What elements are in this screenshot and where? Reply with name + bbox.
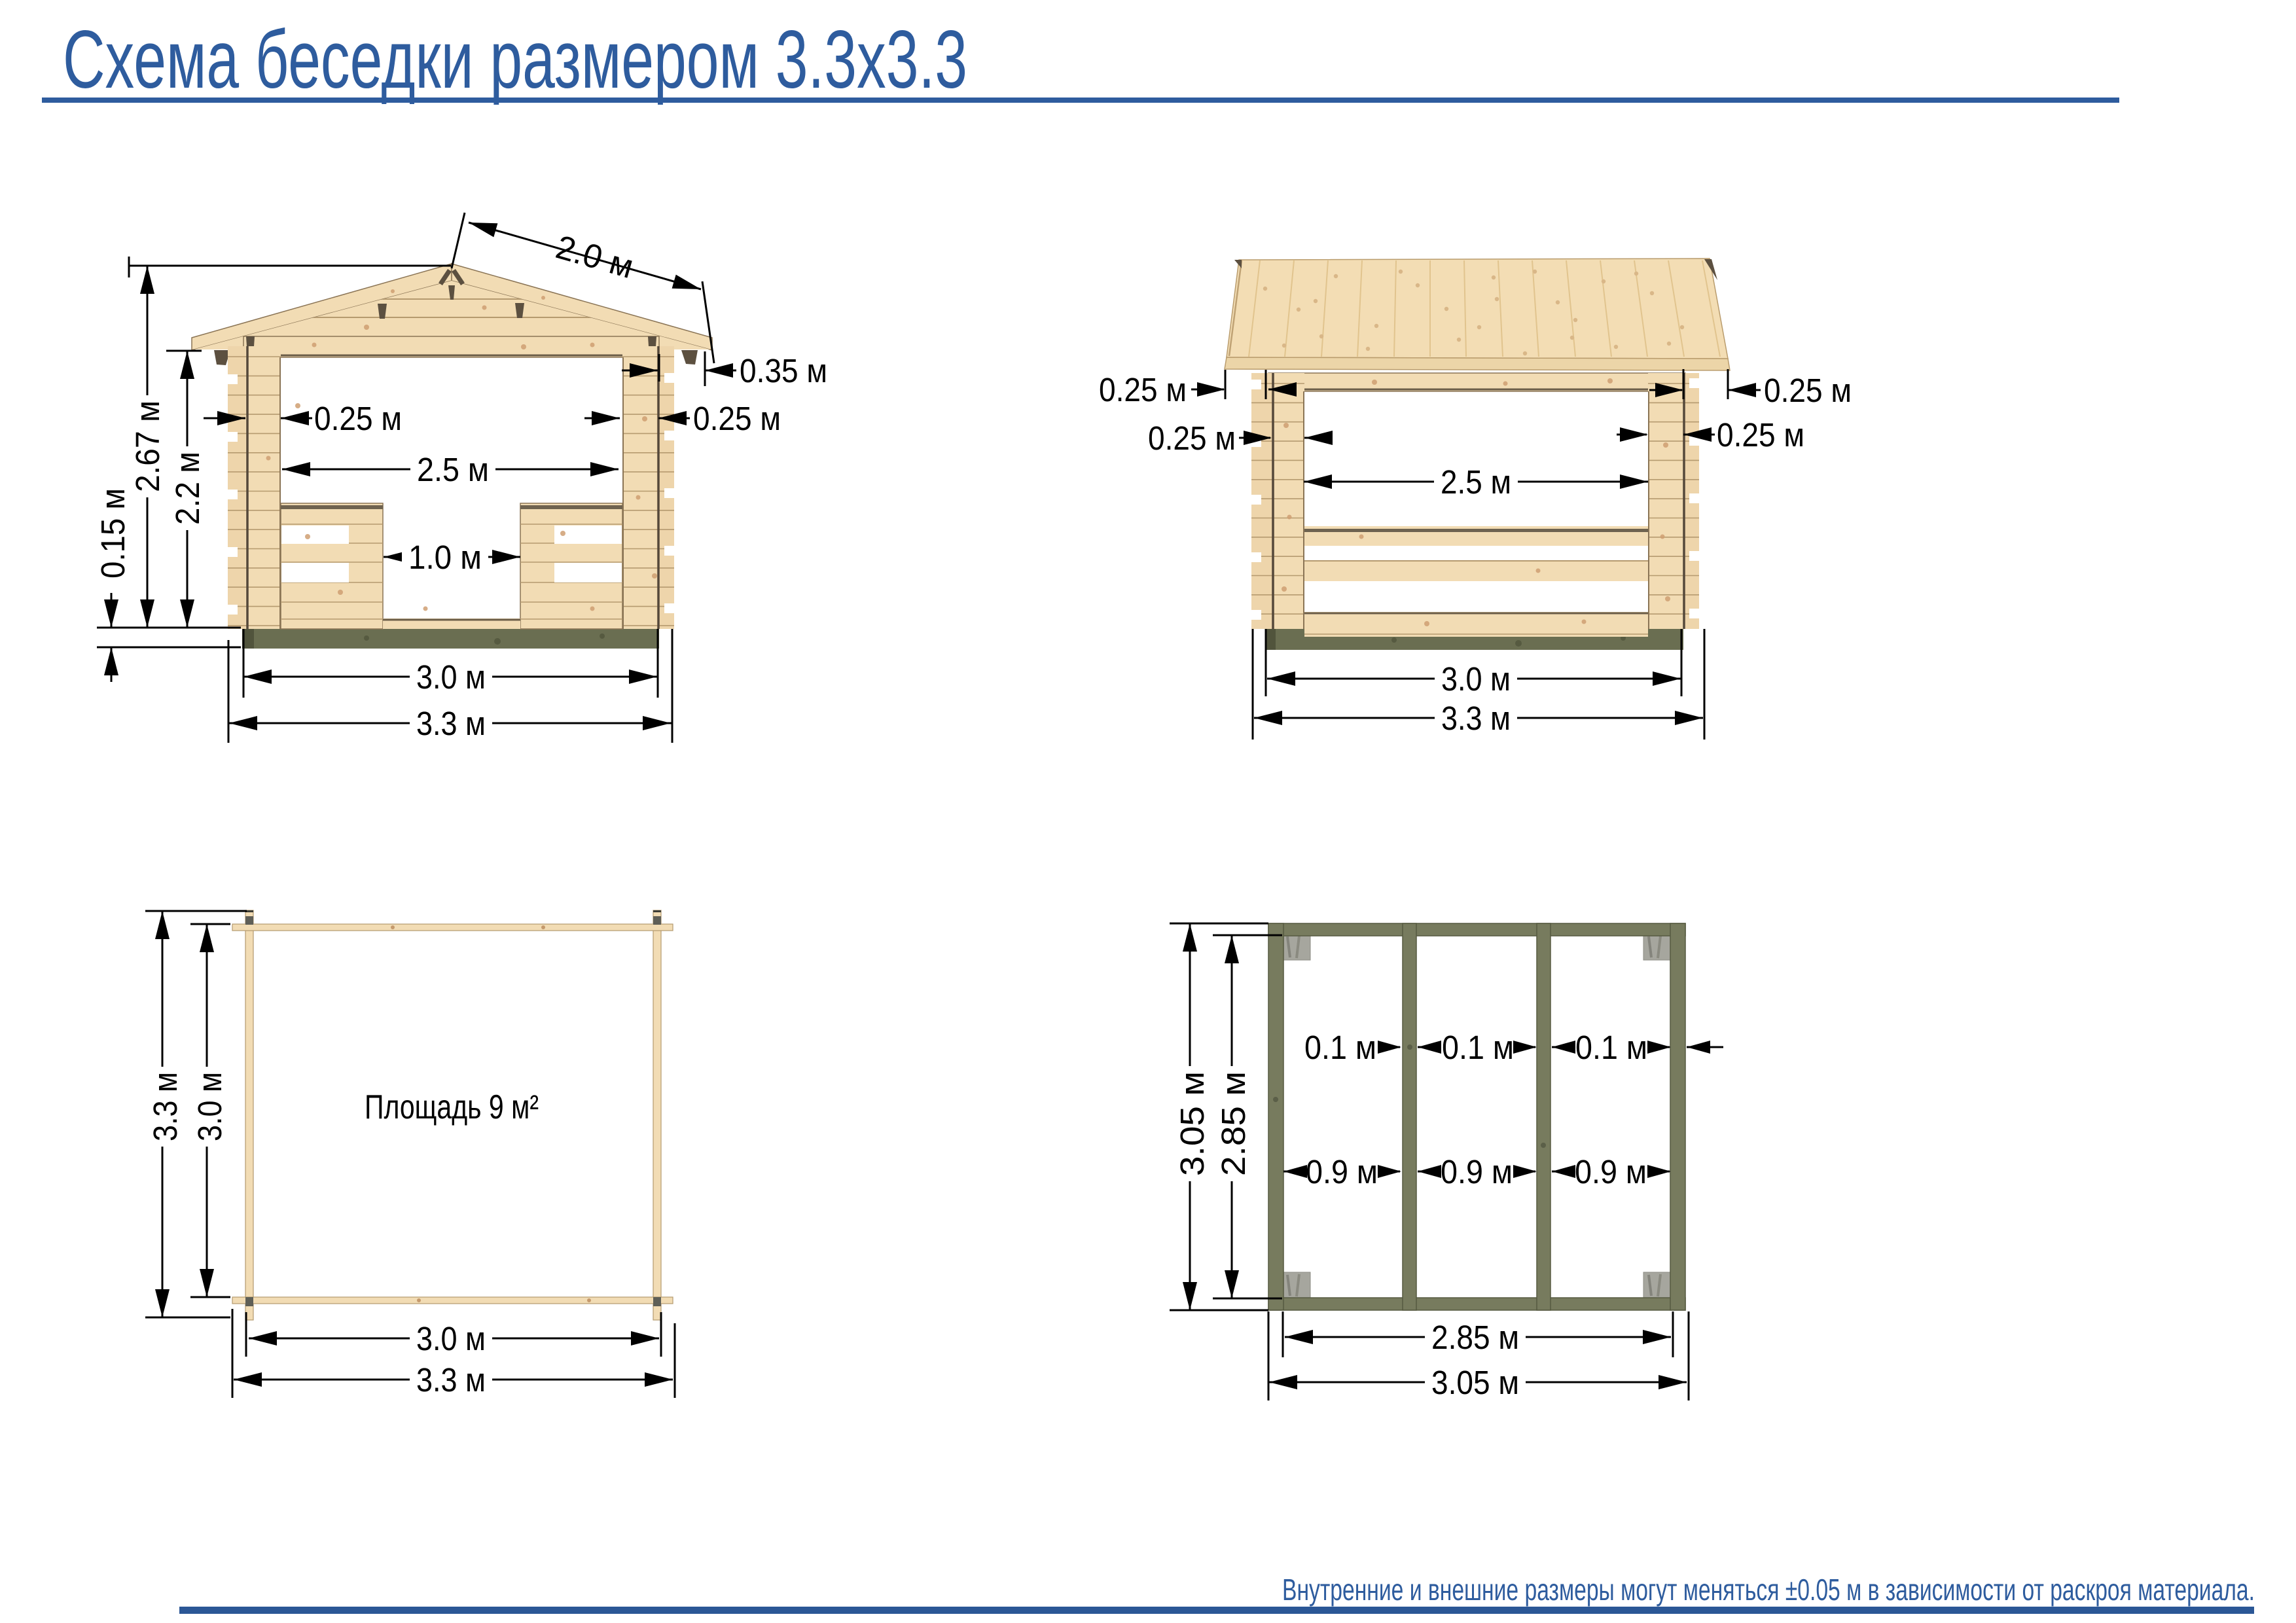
svg-text:0.25 м: 0.25 м [1099,371,1187,408]
svg-text:0.25 м: 0.25 м [1148,419,1236,457]
svg-text:0.9 м: 0.9 м [1306,1153,1378,1190]
svg-text:2.85 м: 2.85 м [1215,1071,1252,1176]
svg-text:3.05 м: 3.05 м [1431,1364,1519,1401]
svg-text:3.05 м: 3.05 м [1174,1071,1211,1176]
svg-text:0.9 м: 0.9 м [1575,1153,1647,1190]
svg-text:3.3 м: 3.3 м [147,1072,184,1141]
svg-text:2.67 м: 2.67 м [129,401,166,492]
svg-text:2.2 м: 2.2 м [169,452,206,525]
svg-text:0.1 м: 0.1 м [1442,1029,1514,1066]
svg-text:2.0 м: 2.0 м [552,228,637,285]
svg-text:0.1 м: 0.1 м [1304,1029,1376,1066]
svg-text:0.15 м: 0.15 м [94,488,132,579]
svg-text:3.3 м: 3.3 м [416,705,486,742]
svg-text:3.3 м: 3.3 м [416,1361,486,1399]
svg-text:0.25 м: 0.25 м [314,400,402,437]
svg-text:1.0 м: 1.0 м [408,539,482,576]
svg-text:2.85 м: 2.85 м [1431,1319,1519,1356]
svg-text:Схема беседки размером 3.3х3.3: Схема беседки размером 3.3х3.3 [63,14,967,105]
svg-text:3.0 м: 3.0 м [191,1072,228,1141]
svg-text:Внутренние и внешние размеры м: Внутренние и внешние размеры могут менят… [1282,1573,2255,1607]
svg-text:0.25 м: 0.25 м [693,400,781,437]
svg-text:0.9 м: 0.9 м [1441,1153,1513,1190]
svg-text:3.0 м: 3.0 м [416,1320,486,1357]
svg-text:3.3 м: 3.3 м [1441,700,1511,737]
svg-text:2.5 м: 2.5 м [1441,463,1511,501]
svg-text:3.0 м: 3.0 м [1441,660,1511,698]
svg-text:3.0 м: 3.0 м [416,658,486,696]
svg-text:Площадь 9 м²: Площадь 9 м² [365,1088,539,1126]
svg-text:2.5 м: 2.5 м [417,451,489,488]
svg-text:0.25 м: 0.25 м [1764,372,1852,409]
svg-text:0.35 м: 0.35 м [740,352,827,389]
svg-text:0.1 м: 0.1 м [1575,1029,1647,1066]
svg-text:0.25 м: 0.25 м [1717,416,1804,454]
